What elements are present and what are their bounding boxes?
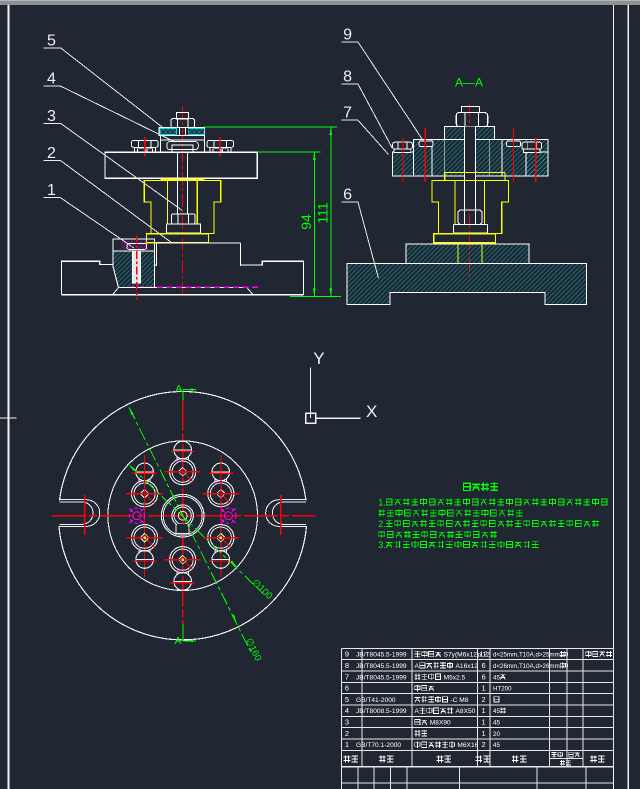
svg-text:5: 5 — [345, 695, 349, 704]
svg-text:45: 45 — [493, 708, 500, 715]
svg-text:A16x12: A16x12 — [456, 663, 479, 670]
svg-text:2: 2 — [47, 145, 56, 162]
svg-text:Y: Y — [313, 349, 324, 368]
svg-text:JB/T8045.5-1999: JB/T8045.5-1999 — [356, 663, 407, 670]
svg-text:6: 6 — [345, 684, 349, 693]
svg-text:6: 6 — [343, 186, 352, 203]
svg-text:1: 1 — [345, 740, 349, 749]
svg-text:4: 4 — [47, 71, 56, 88]
svg-text:2: 2 — [482, 695, 486, 704]
svg-text:8: 8 — [343, 68, 352, 85]
svg-text:45: 45 — [493, 674, 500, 681]
svg-text:A: A — [175, 383, 182, 395]
svg-text:X: X — [366, 402, 377, 421]
svg-text:2: 2 — [345, 729, 349, 738]
svg-text:1.: 1. — [378, 497, 386, 507]
svg-text:9: 9 — [345, 650, 349, 659]
svg-text:4: 4 — [345, 706, 349, 715]
svg-text:6: 6 — [482, 672, 486, 681]
svg-text:45: 45 — [493, 720, 500, 727]
svg-text:2.: 2. — [378, 519, 386, 529]
svg-text:12: 12 — [479, 650, 487, 659]
svg-text:9: 9 — [343, 26, 352, 43]
svg-text:M5x2.5: M5x2.5 — [444, 674, 466, 681]
svg-text:1: 1 — [482, 706, 486, 715]
svg-text:JB/T8045.5-1999: JB/T8045.5-1999 — [356, 652, 407, 659]
svg-text:1: 1 — [47, 182, 56, 199]
svg-text:d<26mm,T10A,d>26mm,20: d<26mm,T10A,d>26mm,20 — [493, 663, 569, 670]
svg-text:HT200: HT200 — [493, 686, 512, 693]
svg-text:JB/T8045.5-1999: JB/T8045.5-1999 — [356, 674, 407, 681]
svg-text:7: 7 — [345, 672, 349, 681]
svg-text:1: 1 — [482, 729, 486, 738]
svg-text:20: 20 — [493, 731, 500, 738]
svg-text:8: 8 — [345, 661, 349, 670]
svg-text:7: 7 — [343, 105, 352, 122]
svg-text:A: A — [415, 663, 420, 670]
svg-text:3: 3 — [345, 718, 349, 727]
svg-text:A: A — [415, 708, 420, 715]
svg-text:5: 5 — [47, 32, 56, 49]
svg-text:45: 45 — [493, 742, 500, 749]
svg-text:GB/T41-2000: GB/T41-2000 — [356, 697, 396, 704]
svg-text:JB/T8008.5-1999: JB/T8008.5-1999 — [356, 708, 407, 715]
svg-text:111: 111 — [314, 202, 330, 223]
svg-text:6: 6 — [482, 661, 486, 670]
svg-text:GB/T70.1-2000: GB/T70.1-2000 — [356, 742, 401, 749]
svg-text:-C M8: -C M8 — [451, 697, 469, 704]
svg-text:A8X50: A8X50 — [456, 708, 476, 715]
svg-text:1: 1 — [482, 684, 486, 693]
svg-text:A: A — [174, 635, 181, 647]
svg-text:d<25mm,T10A,d>25mm,20: d<25mm,T10A,d>25mm,20 — [493, 652, 569, 659]
svg-text:M8X90: M8X90 — [430, 720, 451, 727]
svg-text:2: 2 — [482, 740, 486, 749]
svg-text:M6X16: M6X16 — [457, 742, 478, 749]
svg-text:3: 3 — [47, 108, 56, 125]
svg-text:1: 1 — [482, 718, 486, 727]
svg-text:A—A: A—A — [455, 76, 483, 90]
svg-text:3.: 3. — [378, 540, 386, 550]
svg-text:94: 94 — [298, 214, 314, 230]
